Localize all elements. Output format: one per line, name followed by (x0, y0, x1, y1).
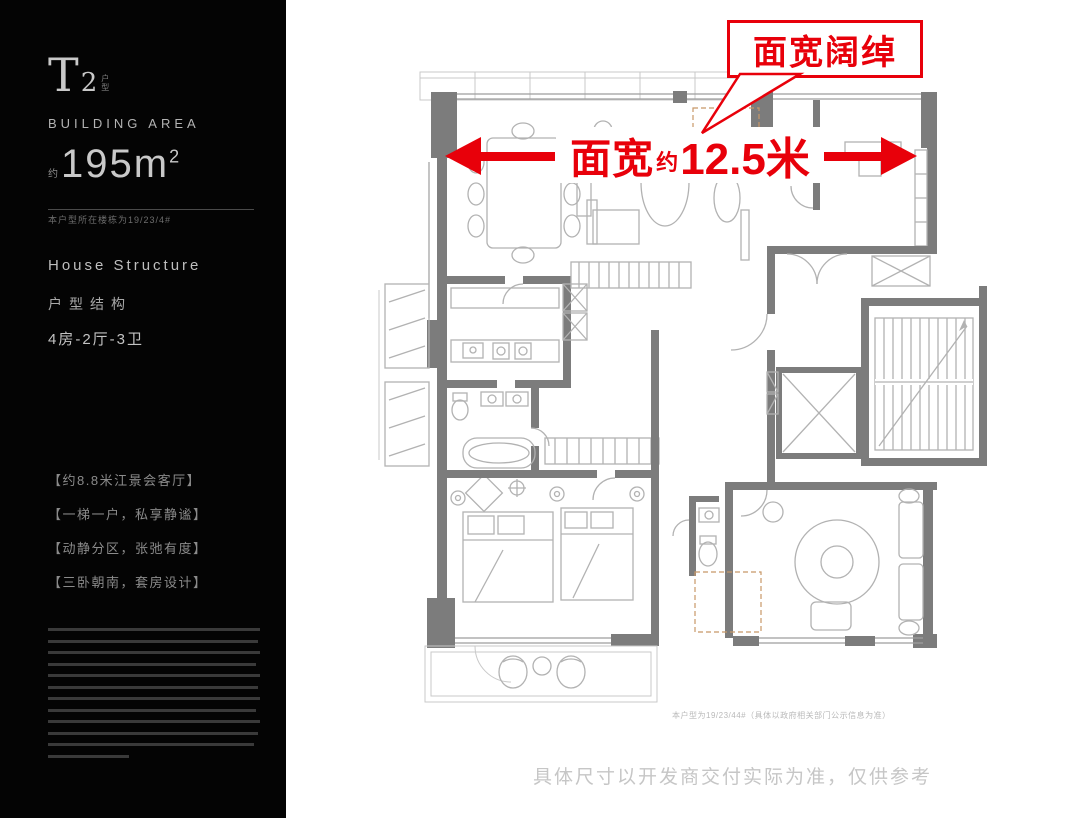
selling-point: 【约8.8米江景会客厅】 (48, 470, 208, 489)
unit-number: 2 (81, 70, 98, 96)
building-note: 本户型所在楼栋为19/23/4# (48, 213, 171, 226)
structure-heading-cn: 户型结构 (48, 294, 132, 314)
building-area-block: BUILDING AREA 约195m2 (48, 116, 200, 187)
floorplan-page: T 2 户型 BUILDING AREA 约195m2 本户型所在楼栋为19/2… (0, 0, 1080, 818)
width-arrow-left-icon (445, 137, 555, 175)
selling-point: 【一梯一户，私享静谧】 (48, 504, 208, 523)
bathroom-small (673, 496, 719, 576)
callout-bubble: 面宽阔绰 (727, 20, 923, 78)
unit-tag: 户型 (101, 74, 111, 92)
building-area-label: BUILDING AREA (48, 116, 200, 131)
elevator-shaft (767, 370, 859, 456)
building-area-value: 约195m2 (48, 142, 200, 187)
bottom-balcony (425, 634, 659, 702)
sidebar-divider (48, 209, 254, 210)
kitchen (447, 276, 571, 388)
width-arrow-right-icon (820, 137, 917, 175)
callout-tail-icon (688, 71, 808, 137)
disclaimer-text: 具体尺寸以开发商交付实际为准，仅供参考 (420, 762, 1045, 789)
legal-fine-print (48, 628, 260, 766)
area-approx-prefix: 约 (48, 169, 60, 180)
structure-heading-en: House Structure (48, 257, 201, 274)
selling-point: 【动静分区，张弛有度】 (48, 538, 208, 557)
room-layout: 4房-2厅-3卫 (48, 328, 144, 349)
width-approx: 约 (656, 145, 678, 177)
callout-text: 面宽阔绰 (753, 25, 897, 74)
unit-logo: T 2 户型 (48, 52, 111, 98)
master-suite (725, 482, 937, 648)
plan-footnote: 本户型为19/23/44#（具体以政府相关部门公示信息为准） (672, 710, 891, 721)
bedrooms-south (447, 330, 659, 646)
selling-points-list: 【约8.8米江景会客厅】 【一梯一户，私享静谧】 【动静分区，张弛有度】 【三卧… (48, 470, 208, 606)
selling-point: 【三卧朝南，套房设计】 (48, 572, 208, 591)
stair-core (861, 286, 987, 466)
info-sidebar: T 2 户型 BUILDING AREA 约195m2 本户型所在楼栋为19/2… (0, 0, 286, 818)
bathroom-main (447, 380, 571, 511)
width-label: 面宽 (570, 125, 654, 185)
left-bay-units (379, 284, 429, 466)
unit-letter: T (48, 52, 79, 98)
